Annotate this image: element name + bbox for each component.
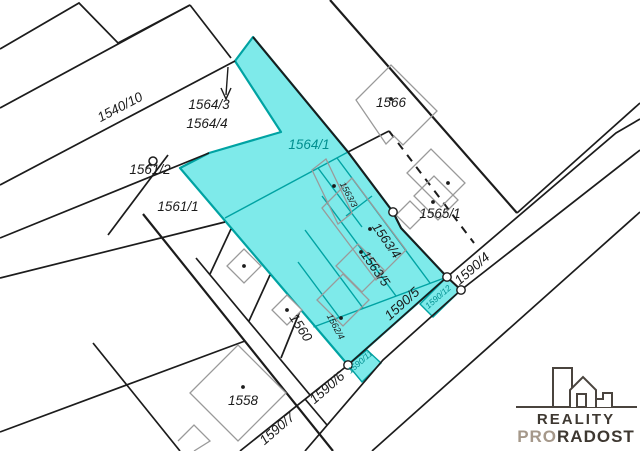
parcel-label-1566: 1566 bbox=[376, 95, 407, 110]
parcel-label-1564-4: 1564/4 bbox=[186, 116, 227, 131]
parcel-label-1590-6: 1590/6 bbox=[307, 368, 348, 407]
boundary-circle bbox=[443, 273, 451, 281]
parcel-label-1558: 1558 bbox=[228, 393, 259, 408]
logo-text-pro: PRO bbox=[517, 427, 557, 446]
boundary-cross-2 bbox=[93, 343, 180, 451]
building-fragment bbox=[178, 425, 210, 451]
logo-buildings-icon bbox=[516, 368, 637, 407]
agency-logo: REALITY PRORADOST bbox=[516, 368, 637, 446]
cadastral-map-view: 1540/101564/31564/41561/21561/11564/1156… bbox=[0, 0, 640, 451]
building-dot bbox=[332, 184, 336, 188]
building-dot bbox=[339, 316, 343, 320]
boundary-strip-connector bbox=[190, 5, 231, 58]
logo-text-bottom: PRORADOST bbox=[517, 427, 635, 446]
building-dot bbox=[241, 385, 245, 389]
parcel-label-1540-10: 1540/10 bbox=[95, 89, 146, 125]
boundary-1566-upper bbox=[517, 103, 640, 213]
parcel-label-1561-2: 1561/2 bbox=[129, 162, 171, 177]
parcel-label-1565-1: 1565/1 bbox=[419, 206, 460, 221]
parcel-label-1564-3: 1564/3 bbox=[188, 97, 230, 112]
building-dot bbox=[285, 308, 289, 312]
boundary-connector-1566 bbox=[348, 131, 389, 152]
building-dot bbox=[242, 264, 246, 268]
parcel-label-1561-1: 1561/1 bbox=[157, 199, 198, 214]
band-divider-2 bbox=[249, 275, 270, 321]
boundary-circle bbox=[389, 208, 397, 216]
boundary-1561-2 bbox=[0, 153, 209, 238]
logo-text-radost: RADOST bbox=[557, 427, 635, 446]
building-dot bbox=[431, 200, 435, 204]
arrow-icon bbox=[221, 67, 231, 99]
building-dot bbox=[446, 181, 450, 185]
boundary-top-corner bbox=[0, 3, 190, 49]
cadastral-map: 1540/101564/31564/41561/21561/11564/1156… bbox=[0, 0, 640, 451]
logo-text-top: REALITY bbox=[537, 411, 615, 428]
parcel-label-1564-1: 1564/1 bbox=[288, 137, 329, 152]
